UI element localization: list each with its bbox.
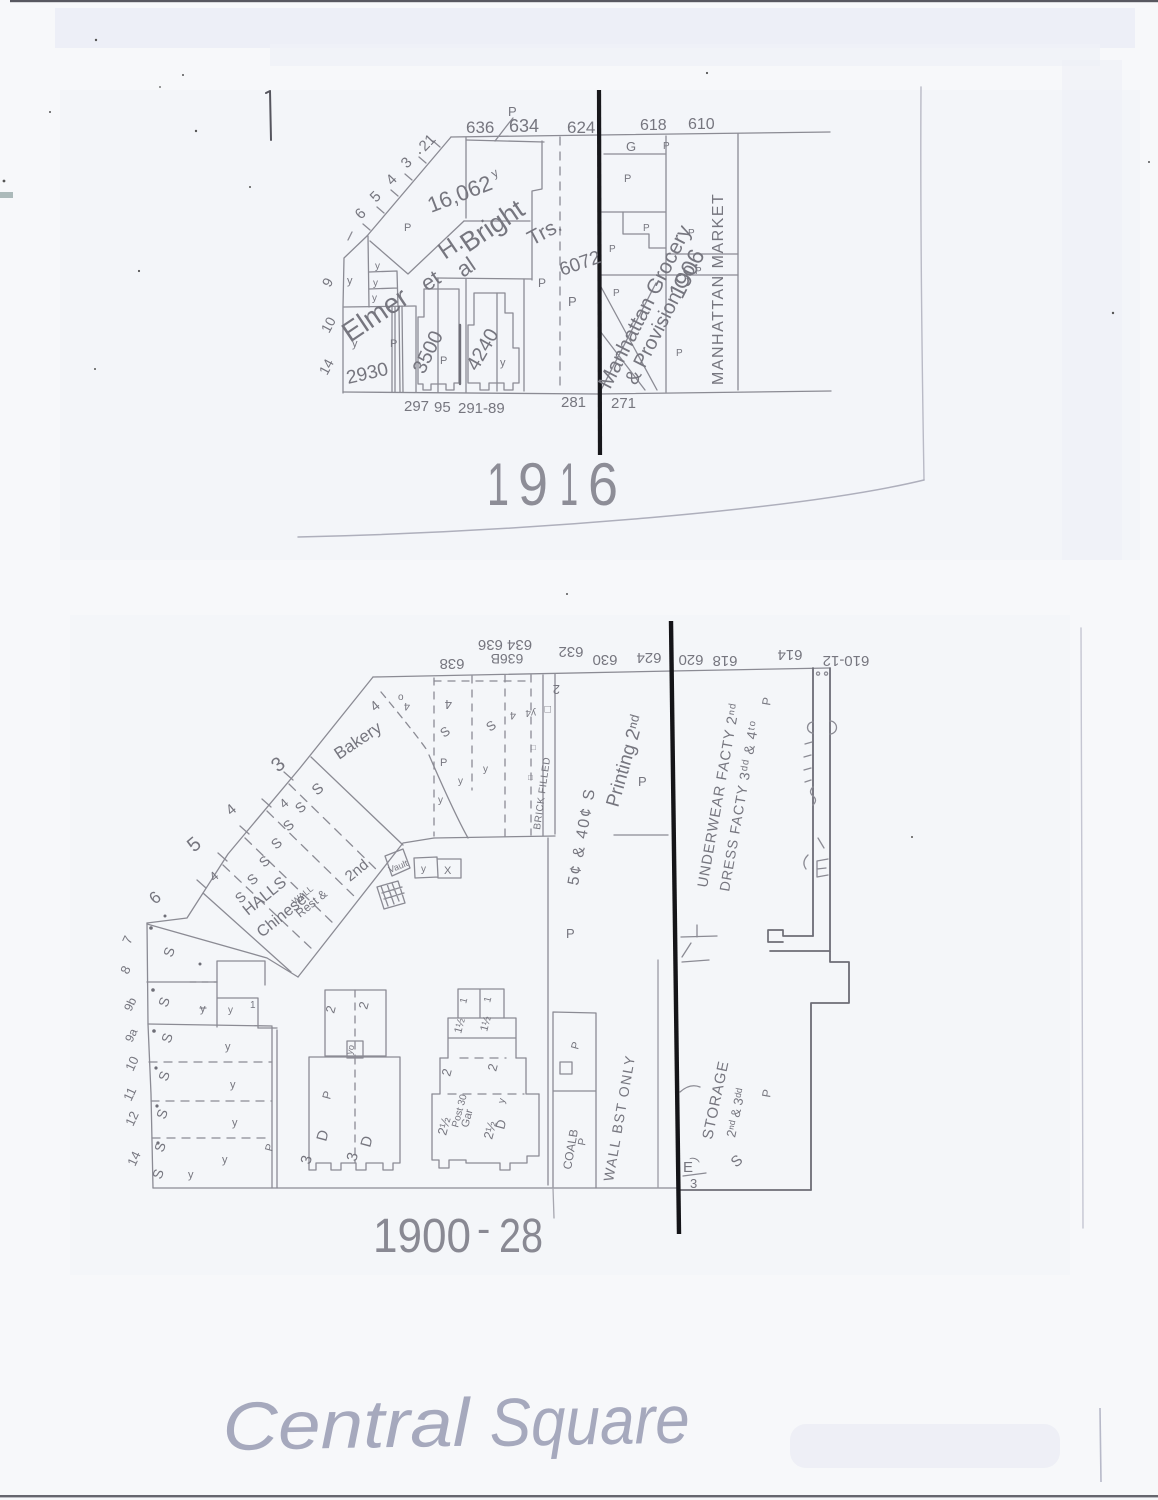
svg-text:y: y — [232, 1117, 238, 1129]
svg-text:y: y — [438, 795, 443, 806]
svg-text:3: 3 — [690, 1176, 697, 1191]
svg-text:P: P — [508, 104, 517, 119]
svg-text:P: P — [643, 223, 650, 234]
svg-text:4: 4 — [404, 700, 410, 712]
svg-text:P: P — [676, 348, 683, 359]
svg-text:P: P — [638, 774, 647, 789]
svg-text:620: 620 — [678, 651, 703, 668]
svg-text:P: P — [538, 276, 546, 290]
svg-text:y: y — [222, 1154, 228, 1166]
svg-text:634: 634 — [509, 116, 539, 136]
svg-text:y: y — [500, 357, 506, 369]
svg-text:P: P — [624, 173, 631, 185]
svg-text:P: P — [440, 757, 447, 769]
svg-text:P: P — [609, 244, 616, 255]
svg-text:MANHATTAN MARKET: MANHATTAN MARKET — [710, 193, 727, 385]
svg-text:E: E — [683, 1159, 693, 1176]
svg-text:P: P — [613, 288, 620, 299]
svg-text:618: 618 — [712, 652, 737, 669]
svg-text:y: y — [483, 764, 488, 775]
svg-text:y: y — [421, 864, 426, 875]
svg-text:4: 4 — [445, 697, 452, 712]
svg-text:□: □ — [531, 743, 536, 752]
svg-text:28: 28 — [499, 1210, 543, 1263]
svg-text:y: y — [373, 278, 378, 289]
svg-text:Square: Square — [489, 1382, 690, 1461]
svg-text:618: 618 — [640, 117, 667, 134]
svg-text:1900: 1900 — [373, 1210, 471, 1263]
svg-text:Central: Central — [222, 1385, 472, 1465]
svg-text:632: 632 — [558, 643, 583, 660]
svg-text:636: 636 — [466, 118, 494, 137]
svg-text:y: y — [375, 261, 380, 272]
svg-text:y: y — [458, 776, 463, 787]
svg-text:1: 1 — [560, 451, 578, 518]
svg-text:9: 9 — [518, 451, 548, 518]
svg-text:638: 638 — [439, 655, 464, 672]
svg-text:630: 630 — [592, 651, 617, 668]
svg-text:610: 610 — [688, 116, 715, 133]
svg-text:6: 6 — [588, 451, 618, 518]
svg-text:1: 1 — [487, 451, 509, 518]
svg-text:271: 271 — [611, 395, 636, 412]
svg-text:y: y — [225, 1041, 231, 1053]
svg-text:297: 297 — [404, 398, 429, 415]
svg-text:G: G — [626, 139, 636, 154]
svg-text:y: y — [352, 338, 358, 350]
svg-text:624: 624 — [567, 118, 595, 137]
svg-text:y: y — [372, 293, 377, 304]
svg-text:-: - — [477, 1207, 490, 1251]
svg-text:95: 95 — [434, 399, 451, 416]
svg-text:1: 1 — [250, 1000, 256, 1011]
svg-text:614: 614 — [777, 646, 802, 663]
svg-text:291-89: 291-89 — [458, 400, 505, 417]
svg-text:P: P — [440, 355, 447, 367]
svg-text:y: y — [230, 1079, 236, 1091]
svg-text:□: □ — [528, 773, 533, 782]
svg-text:P: P — [390, 338, 397, 350]
svg-text:X: X — [444, 865, 452, 877]
svg-text:y: y — [200, 1003, 206, 1015]
svg-text:P: P — [568, 294, 577, 309]
svg-text:P: P — [663, 141, 670, 152]
svg-text:y: y — [188, 1169, 194, 1181]
svg-text:y4: y4 — [525, 707, 536, 718]
svg-text:y: y — [347, 275, 353, 287]
svg-text:P: P — [404, 222, 411, 234]
svg-text:o: o — [398, 692, 404, 703]
svg-text:2: 2 — [553, 682, 560, 697]
svg-text:P: P — [566, 926, 575, 941]
svg-text:634 636: 634 636 — [478, 636, 532, 653]
svg-text:y: y — [228, 1005, 233, 1016]
svg-text:4: 4 — [510, 709, 516, 721]
svg-text:□: □ — [544, 703, 551, 715]
svg-text:624: 624 — [636, 649, 661, 666]
svg-text:610-12: 610-12 — [823, 652, 870, 669]
svg-text:281: 281 — [561, 394, 586, 411]
